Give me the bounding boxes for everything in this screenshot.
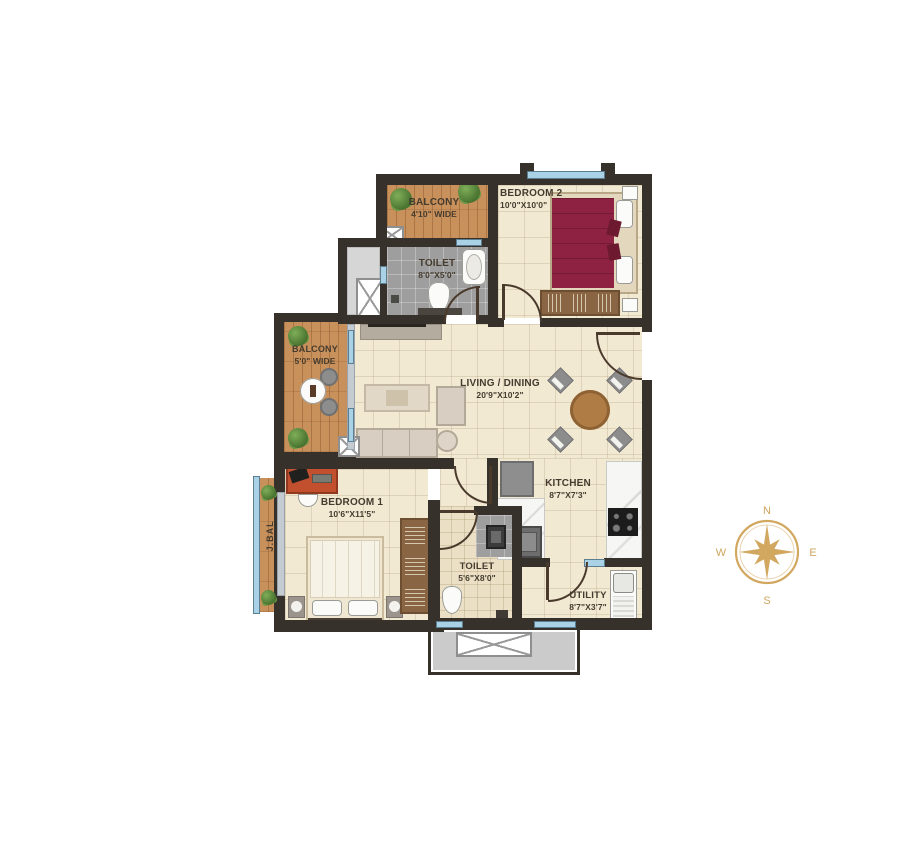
side-table [436,430,458,452]
wall [540,318,652,327]
label-utility: UTILITY 8'7"X3'7" [548,590,628,613]
label-juliet-balcony: J.BAL [265,511,277,561]
window [527,171,605,179]
nightstand [622,298,638,312]
wall [274,313,342,322]
room-size: 5'0" WIDE [284,356,346,367]
window [380,266,387,284]
sofa [356,428,438,458]
room-size: 5'6"X8'0" [442,573,512,584]
room-name: BEDROOM 2 [500,188,562,199]
door-leaf [489,466,492,502]
compass-north: N [763,505,771,517]
room-name: LIVING / DINING [460,378,540,389]
wall [376,174,652,185]
bed1-duvet [310,540,380,598]
plant-icon [261,485,276,500]
wall [642,380,652,630]
wall [274,313,284,461]
plant-icon [261,590,276,605]
wardrobe-bedroom2 [540,290,620,316]
label-bedroom1: BEDROOM 1 10'6"X11'5" [302,496,402,520]
wall [274,620,444,632]
compass-east: E [809,547,816,559]
dining-table [570,390,610,430]
label-toilet-bottom: TOILET 5'6"X8'0" [442,561,512,584]
label-bedroom2: BEDROOM 2 10'0"X10'0" [500,187,590,211]
room-name: BALCONY [409,197,460,208]
room-size: 4'10" WIDE [384,209,484,220]
shower-area [476,515,512,557]
room-size: 8'0"X5'0" [392,270,482,281]
bed2-pillow [616,256,633,284]
window-juliet [253,476,260,614]
compass-rose: N S E W [712,492,822,612]
door-leaf [476,286,479,320]
room-name: BEDROOM 1 [321,497,383,508]
door-leaf [440,510,476,513]
window [456,239,482,246]
label-living-dining: LIVING / DINING 20'9"X10'2" [440,377,560,401]
window [534,621,576,628]
floor-plan: BALCONY 4'10" WIDE BEDROOM 2 10'0"X10'0"… [0,0,914,842]
balcony-table [300,378,326,404]
wall [512,506,522,628]
sliding-door-glass [348,408,354,442]
room-size: 10'6"X11'5" [302,509,402,520]
room-name: TOILET [419,258,456,269]
compass-south: S [763,595,770,607]
label-balcony-top: BALCONY 4'10" WIDE [384,196,484,220]
wardrobe-bedroom1 [400,518,430,614]
room-name: J.BAL [265,520,275,551]
bed1-pillow [312,600,342,616]
sliding-door-glass [348,330,354,364]
bed2-cushion [607,243,622,261]
door-leaf [596,332,640,335]
wall [274,458,454,469]
nightstand [288,596,305,618]
label-balcony-left: BALCONY 5'0" WIDE [284,344,346,367]
bed2-duvet [552,198,614,288]
terrace-ledge [428,627,580,675]
wall [338,315,446,324]
label-kitchen: KITCHEN 8'7"X7'3" [518,477,618,501]
door-leaf [502,284,505,320]
shower-icon [486,525,506,549]
compass-west: W [716,547,727,559]
wall [428,500,440,628]
room-name: BALCONY [292,344,338,354]
balcony-chair [320,398,338,416]
window [436,621,463,628]
wall [338,238,347,324]
room-size: 8'7"X7'3" [518,490,618,501]
bath-fitting [496,610,508,618]
bed1 [306,536,384,624]
room-size: 20'9"X10'2" [440,390,560,401]
compass-star [739,524,795,580]
wall [488,174,498,327]
bed2-cushion [606,219,622,237]
room-size: 8'7"X3'7" [548,602,628,613]
compass-icon: N S E W [712,492,822,612]
nightstand [622,186,638,200]
wall [642,174,652,332]
bath-fitting [391,295,399,303]
room-name: KITCHEN [545,478,591,489]
wall [604,558,652,567]
bed1-pillow [348,600,378,616]
plant-icon [288,428,308,448]
laptop-icon [289,467,310,484]
study-desk [286,466,338,494]
stove-icon [608,508,638,536]
room-name: UTILITY [569,590,606,601]
duct-box-terrace [456,632,532,657]
label-toilet-top: TOILET 8'0"X5'0" [392,257,482,281]
room-size: 10'0"X10'0" [500,200,590,211]
room-name: TOILET [460,561,495,572]
coffee-table [364,384,430,412]
plant-icon [288,326,308,346]
sliding-door-juliet [277,492,285,596]
